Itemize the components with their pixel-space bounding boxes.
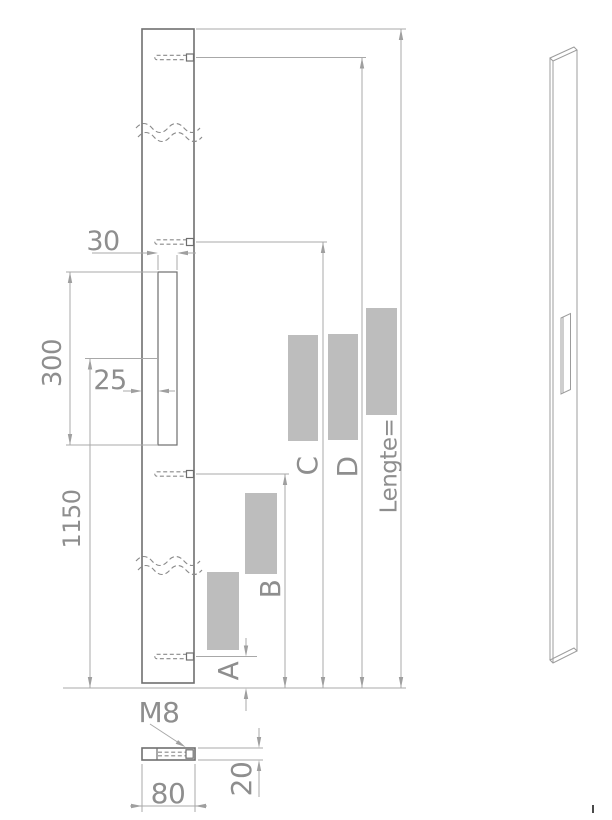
thread-callout: M8 — [139, 696, 186, 747]
dim-1150-label: 1150 — [58, 489, 86, 548]
dim-80-label: 80 — [151, 777, 186, 810]
redaction-box-c — [288, 335, 318, 441]
dim-a-label: A — [212, 661, 245, 680]
drawing-canvas: 300 1150 30 25 — [0, 0, 612, 820]
end-view-thread-boss — [186, 750, 193, 758]
redaction-box-d — [328, 334, 358, 440]
redaction-box-b — [245, 493, 277, 574]
end-view: M8 80 20 — [130, 696, 263, 812]
dim-thickness-20: 20 — [198, 728, 263, 797]
iso-top-face — [550, 47, 577, 61]
dim-d-label: D — [331, 456, 364, 477]
front-view — [136, 29, 202, 683]
dim-300-label: 300 — [38, 339, 68, 387]
front-view-slot — [158, 272, 177, 445]
dim-b-label: B — [254, 580, 287, 599]
dim-25-label: 25 — [93, 365, 126, 396]
dim-30-label: 30 — [86, 226, 119, 257]
dim-20-label: 20 — [225, 762, 258, 797]
isometric-view — [550, 47, 577, 663]
dim-lengte-label: Lengte= — [377, 419, 403, 514]
iso-slot — [561, 314, 571, 395]
redacted-values — [207, 308, 397, 650]
dim-width-80: 80 — [130, 764, 207, 812]
thread-label: M8 — [139, 696, 180, 729]
redaction-box-length — [366, 308, 397, 415]
iso-bottom-face — [550, 648, 577, 663]
dim-c-label: C — [291, 456, 324, 475]
technical-drawing: 300 1150 30 25 — [0, 0, 612, 820]
dim-c: C — [291, 242, 325, 688]
redaction-box-a — [207, 572, 239, 650]
